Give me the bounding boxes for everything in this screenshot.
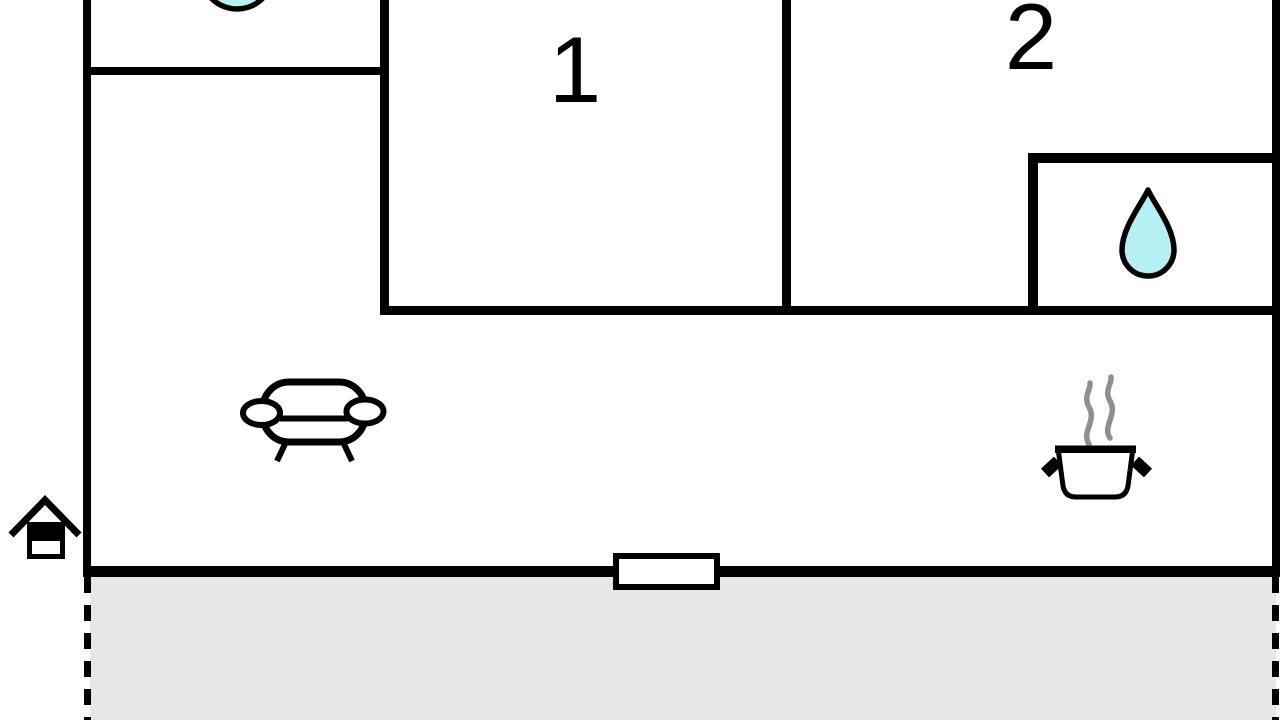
room-2-label: 2 <box>1005 0 1057 89</box>
pot-body <box>1058 448 1133 497</box>
room-1-label: 1 <box>549 17 601 122</box>
terrace-area <box>90 577 1276 720</box>
wall-room1-room2-divider <box>782 0 791 315</box>
sofa-armrest-right <box>347 400 384 424</box>
wall-room1-left <box>380 0 389 315</box>
wall-left <box>83 0 91 577</box>
floor-plan: 1 2 <box>0 0 1280 720</box>
sofa-armrest-left <box>243 401 280 425</box>
wall-utility-room-bottom <box>83 67 389 75</box>
wall-rooms-bottom <box>380 306 1280 315</box>
wall-bathroom-top <box>1028 153 1280 163</box>
door-icon <box>616 556 717 587</box>
wall-bathroom-left <box>1028 153 1038 315</box>
house-body-top <box>27 522 65 541</box>
wall-right <box>1272 0 1280 577</box>
